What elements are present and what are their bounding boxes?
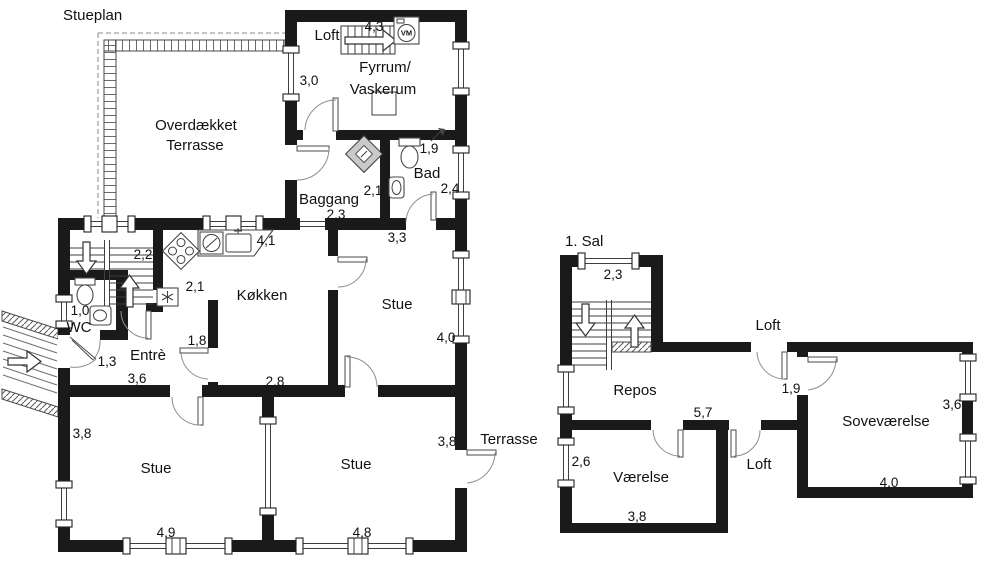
- dim-stair-width: 2,2: [134, 247, 153, 262]
- room-label-loft: Loft: [314, 27, 340, 44]
- room-label-bad: Bad: [414, 165, 441, 182]
- dim-baggang-width: 2,1: [364, 183, 383, 198]
- dim-sove-depth: 3,6: [943, 397, 962, 412]
- dim-vaerelse-depth: 2,6: [572, 454, 591, 469]
- dim-first-stair-width: 2,3: [604, 267, 623, 282]
- bad-toilet-icon: [399, 138, 420, 168]
- dim-vaerelse-width: 3,8: [628, 509, 647, 524]
- room-label-baggang: Baggang: [299, 191, 359, 208]
- dim-stue-mid-depth: 4,0: [437, 330, 456, 345]
- ground-title: Stueplan: [63, 7, 122, 24]
- dim-stue-bottom-depth: 3,8: [438, 434, 457, 449]
- room-label-stue-bottom: Stue: [341, 456, 372, 473]
- boiler-icon: [346, 136, 383, 173]
- room-label-fyrrum-2: Vaskerum: [350, 81, 416, 98]
- dim-stue-bottom-width: 4,8: [353, 525, 372, 540]
- dim-kokken-wall: 1,8: [188, 333, 207, 348]
- washing-machine-icon: VM: [394, 17, 419, 44]
- dim-bad-width: 1,9: [420, 141, 439, 156]
- dim-stue-left-depth: 3,8: [73, 426, 92, 441]
- room-label-loft-south: Loft: [746, 456, 772, 473]
- room-label-overdaekket-1: Overdækket: [155, 117, 238, 134]
- dim-stue-left-width: 4,9: [157, 525, 176, 540]
- entrance-ramp: [2, 311, 58, 417]
- dim-kokken-passage: 2,1: [186, 279, 205, 294]
- room-label-stue-left: Stue: [141, 460, 172, 477]
- wc-toilet-icon: [75, 278, 95, 305]
- dim-stue-mid-width: 3,3: [388, 230, 407, 245]
- wc-sink-icon: [90, 306, 111, 325]
- bad-sink-icon: [389, 177, 404, 198]
- room-label-loft-north: Loft: [755, 317, 781, 334]
- first-windows: [558, 253, 976, 487]
- room-label-fyrrum-1: Fyrrum/: [359, 59, 411, 76]
- room-label-repos: Repos: [613, 382, 656, 399]
- room-label-sovevaerelse: Soveværelse: [842, 413, 930, 430]
- dim-bad-depth: 2,4: [441, 181, 460, 196]
- first-doors: [653, 352, 837, 457]
- room-label-wc: WC: [67, 319, 92, 336]
- dim-entre-door: 1,3: [98, 354, 117, 369]
- room-label-vaerelse: Værelse: [613, 469, 669, 486]
- room-label-kokken: Køkken: [237, 287, 288, 304]
- room-label-stue-mid: Stue: [382, 296, 413, 313]
- dim-fyrrum-wall: 3,0: [300, 73, 319, 88]
- first-stairs: [572, 300, 651, 370]
- first-openings: [560, 255, 973, 485]
- first-title: 1. Sal: [565, 233, 603, 250]
- washer-label: VM: [401, 29, 412, 38]
- dim-entre-width: 3,6: [128, 371, 147, 386]
- stove-icon: [163, 233, 200, 270]
- floorplan-page: VM: [0, 0, 991, 570]
- dim-kokken-width: 2,8: [266, 374, 285, 389]
- dim-sove-width: 4,0: [880, 475, 899, 490]
- dim-baggang-depth: 2,3: [327, 207, 346, 222]
- dim-loft-ladder: 4,3: [365, 19, 384, 34]
- dim-sove-door: 1,9: [782, 381, 801, 396]
- ground-floor: VM: [2, 7, 538, 554]
- room-label-entre: Entrè: [130, 347, 166, 364]
- floorplan-drawing: VM: [0, 0, 991, 570]
- room-label-terrasse: Terrasse: [480, 431, 538, 448]
- room-label-overdaekket-2: Terrasse: [166, 137, 224, 154]
- first-labels: 1. Sal 2,3 Loft Repos 5,7 1,9 Soveværels…: [565, 233, 961, 524]
- first-floor: 1. Sal 2,3 Loft Repos 5,7 1,9 Soveværels…: [558, 233, 976, 533]
- dim-kokken-counter: 4,1: [257, 233, 276, 248]
- fridge-icon: [157, 288, 178, 306]
- dim-wc-width: 1,0: [71, 303, 90, 318]
- dim-repos-width: 5,7: [694, 405, 713, 420]
